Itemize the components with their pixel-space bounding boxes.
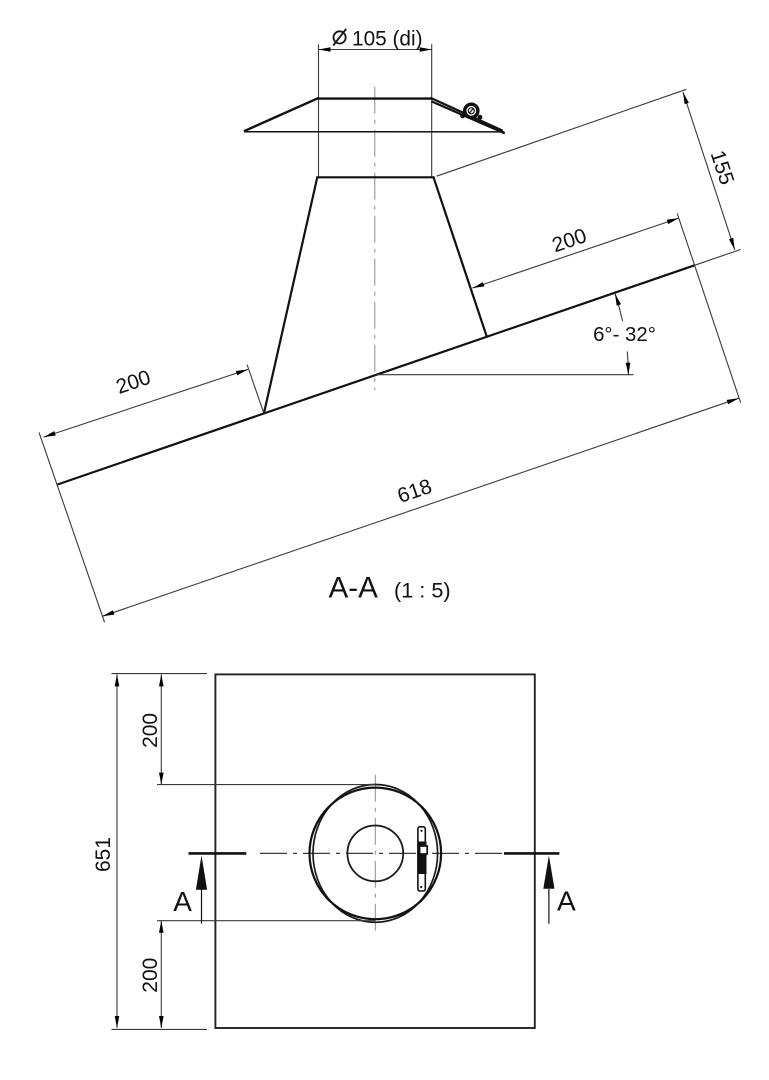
svg-text:A: A [173, 886, 192, 917]
svg-text:200: 200 [139, 958, 162, 993]
svg-text:6°- 32°: 6°- 32° [593, 324, 656, 346]
svg-text:(1 : 5): (1 : 5) [394, 577, 451, 602]
svg-text:200: 200 [139, 713, 162, 748]
svg-text:651: 651 [92, 837, 115, 872]
svg-text:A-A: A-A [329, 571, 379, 604]
svg-text:A: A [557, 886, 576, 917]
svg-text:105 (di): 105 (di) [352, 27, 423, 50]
